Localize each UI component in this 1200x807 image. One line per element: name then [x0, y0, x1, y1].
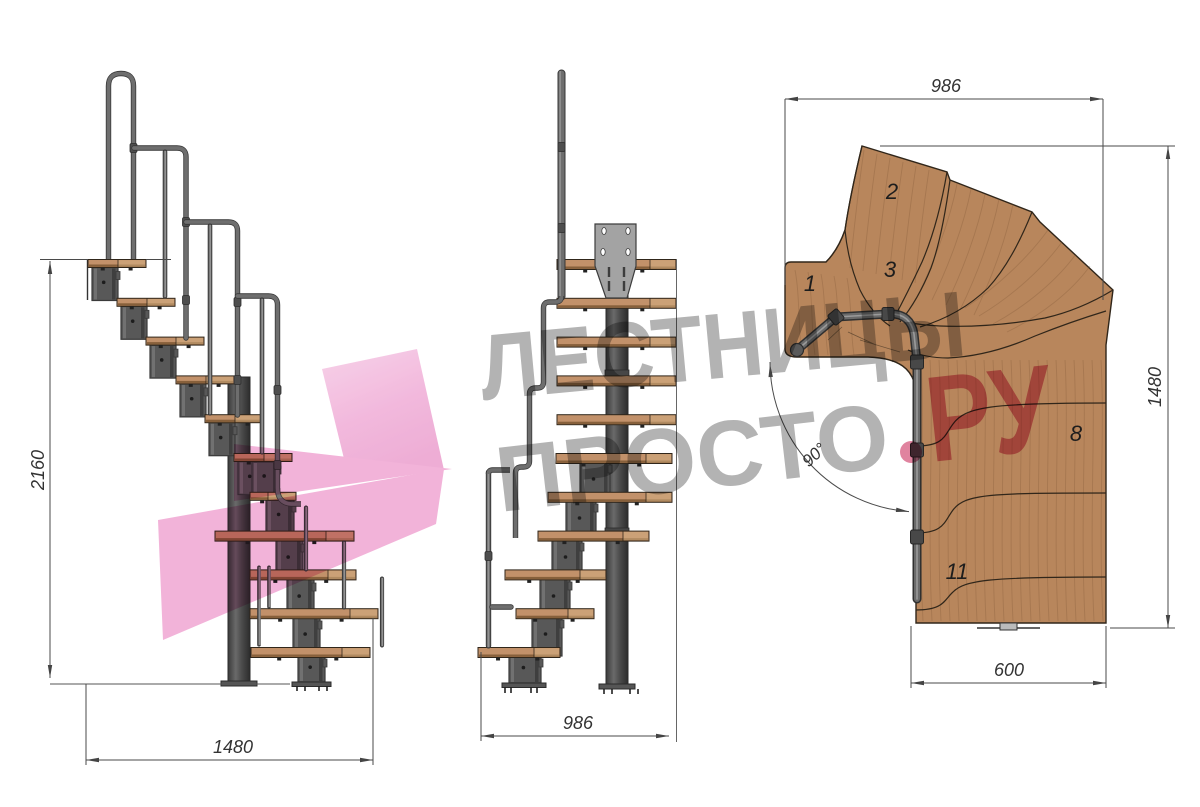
- svg-text:986: 986: [931, 76, 962, 96]
- svg-text:600: 600: [994, 660, 1024, 680]
- svg-text:2160: 2160: [28, 450, 48, 491]
- svg-text:2: 2: [885, 179, 898, 204]
- svg-text:1480: 1480: [213, 737, 253, 757]
- svg-text:8: 8: [1070, 421, 1083, 446]
- svg-text:1480: 1480: [1145, 367, 1165, 407]
- svg-text:986: 986: [563, 713, 594, 733]
- svg-text:РУ: РУ: [919, 339, 1061, 488]
- svg-text:11: 11: [946, 559, 969, 584]
